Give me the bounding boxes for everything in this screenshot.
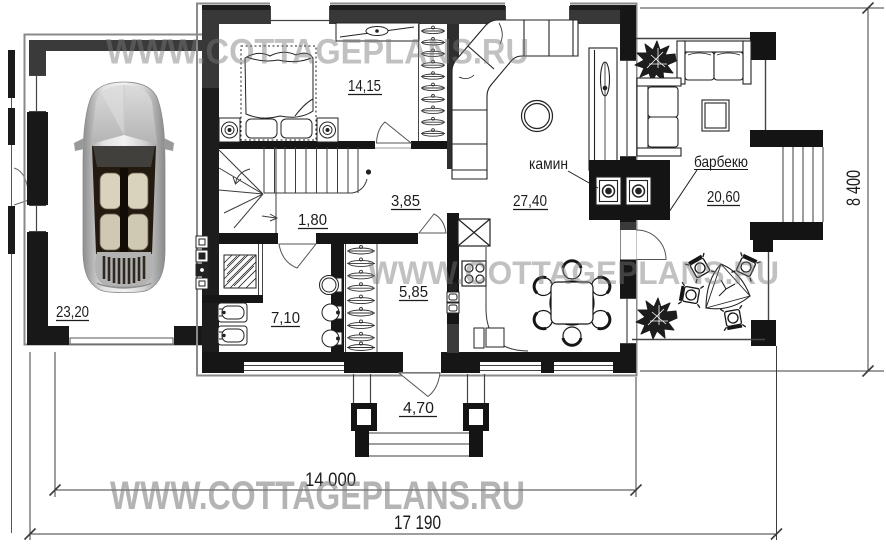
svg-text:7,10: 7,10 [271,310,300,327]
svg-text:4,70: 4,70 [403,400,434,417]
svg-text:барбекю: барбекю [694,154,748,171]
svg-text:WWW.COTTAGEPLANS.RU: WWW.COTTAGEPLANS.RU [106,33,529,72]
svg-text:20,60: 20,60 [707,189,740,206]
svg-text:1,80: 1,80 [298,212,327,229]
svg-text:камин: камин [529,156,568,173]
svg-text:WWW.COTTAGEPLANS.RU: WWW.COTTAGEPLANS.RU [368,255,779,291]
svg-text:8 400: 8 400 [844,170,865,206]
svg-text:3,85: 3,85 [391,193,420,210]
svg-text:27,40: 27,40 [513,193,547,210]
svg-text:14,15: 14,15 [348,78,381,95]
svg-text:WWW.COTTAGEPLANS.RU: WWW.COTTAGEPLANS.RU [110,474,525,518]
svg-text:23,20: 23,20 [56,304,89,321]
